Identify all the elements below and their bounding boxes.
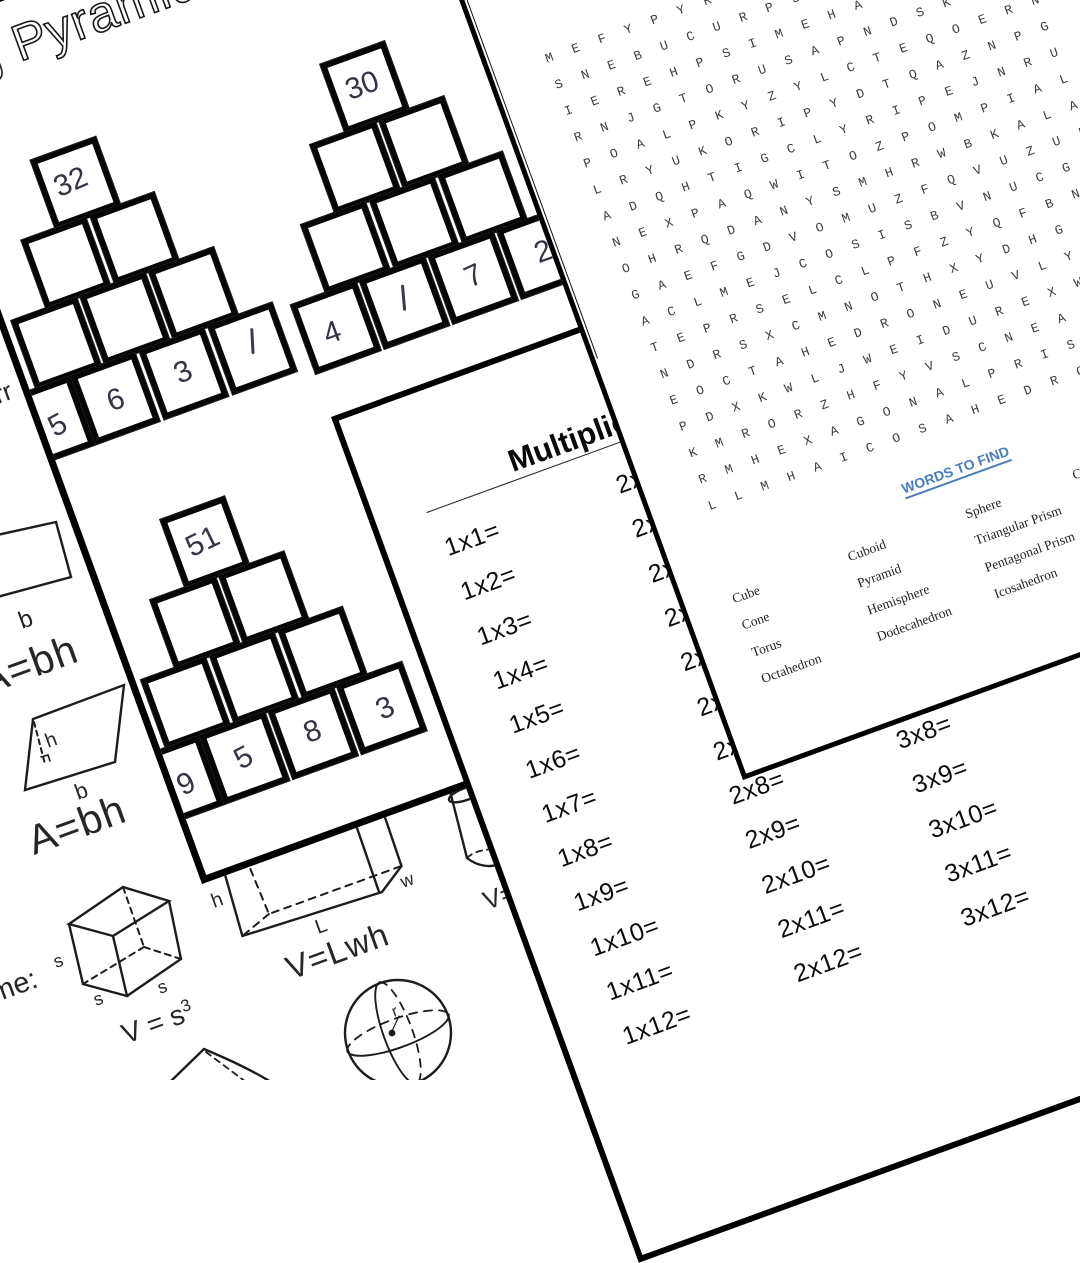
svg-text:r: r: [390, 1003, 401, 1021]
svg-text:me:: me:: [0, 963, 42, 1010]
svg-text:h: h: [208, 888, 226, 912]
svg-text:h: h: [42, 728, 60, 752]
svg-text:s: s: [155, 976, 170, 998]
svg-text:A=bh: A=bh: [0, 626, 84, 704]
svg-text:V = s3: V = s3: [117, 995, 197, 1049]
svg-text:b: b: [15, 605, 37, 635]
svg-text:V=Lwh: V=Lwh: [281, 915, 394, 986]
svg-text:rr: rr: [0, 375, 17, 409]
svg-text:s: s: [51, 950, 66, 972]
svg-text:s: s: [91, 988, 106, 1010]
svg-text:w: w: [397, 868, 418, 892]
